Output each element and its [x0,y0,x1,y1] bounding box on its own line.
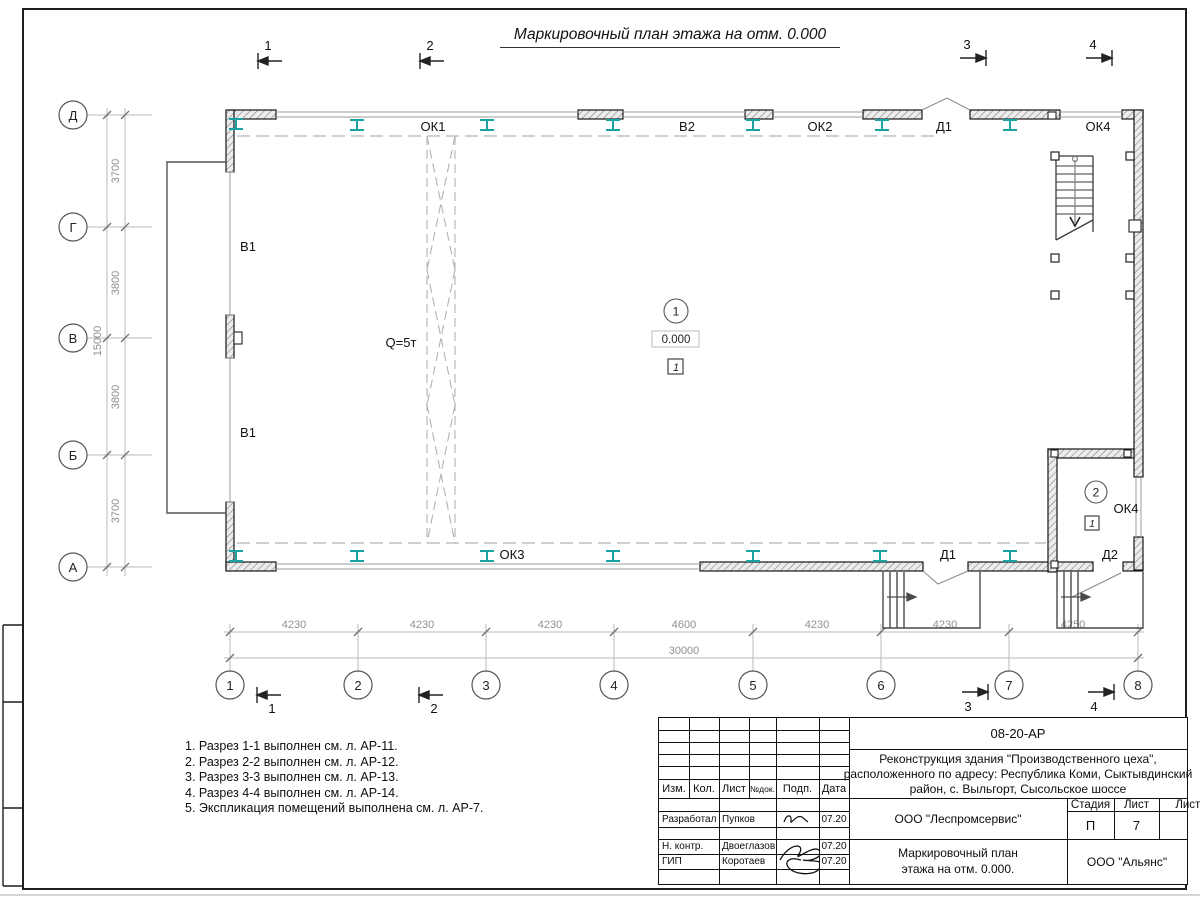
dim-v-3: 3800 [110,385,122,409]
dimension-lines [87,108,1144,671]
room-1-marker: 1 0.000 1 [652,299,699,374]
mark-v1-lower: В1 [240,425,256,440]
ibeam-icon [350,120,364,130]
ibeam-icon [1003,551,1017,561]
dim-h-4: 4600 [672,619,696,631]
dim-h-6: 4230 [933,619,957,631]
axis-row-a: А [69,560,78,575]
note-line: 2. Разрез 2-2 выполнен см. л. АР-12. [185,755,483,771]
room-2-number: 2 [1093,486,1100,500]
tb-sheet-label: Лист [1114,798,1159,811]
tb-client: ООО "Альянс" [1067,839,1187,884]
tb-date-ncontrol: 07.20 [819,839,849,854]
mark-crane-capacity: Q=5т [386,335,417,350]
staircase [1056,156,1093,240]
axis-col-3: 3 [482,678,489,693]
tb-stage-value: П [1067,811,1114,839]
room-2-floor-type: 1 [1089,518,1095,530]
note-line: 4. Разрез 4-4 выполнен см. л. АР-14. [185,786,483,802]
tb-role-gip: ГИП [662,854,719,869]
room-2-marker: 2 1 [1085,481,1107,530]
ibeam-icon [875,120,889,130]
tb-role-developer: Разработал [662,811,719,827]
section-2-top: 2 [426,38,433,53]
entrance-porches [883,572,1143,628]
dim-h-2: 4230 [410,619,434,631]
porch-direction-arrows [887,593,1090,601]
tb-project-line3: район, с. Выльгорт, Сысольское шоссе [849,781,1187,796]
axis-col-6: 6 [877,678,884,693]
signature-icon [776,808,819,881]
dim-h-5: 4230 [805,619,829,631]
dimension-ticks [103,111,1142,662]
section-4-bottom: 4 [1090,699,1097,714]
room-1-elevation: 0.000 [662,334,691,346]
tb-role-ncontrol: Н. контр. [662,839,719,854]
title-block: Изм. Кол. Лист №док. Подп. Дата Разработ… [658,717,1188,885]
ramp-outline [167,162,226,513]
tb-project-line1: Реконструкция здания "Производственного … [849,751,1187,766]
axis-row-b: Б [69,448,78,463]
mark-ok4-right: ОК4 [1114,501,1139,516]
mark-d1-top: Д1 [936,119,952,134]
tb-col-kol: Кол. [689,779,719,798]
dim-h-1: 4230 [282,619,306,631]
tb-org: ООО "Леспромсервис" [849,798,1067,839]
tb-doc-code: 08-20-АР [849,718,1187,749]
tb-date-developer: 07.20 [819,811,849,827]
section-1-bottom: 1 [268,701,275,716]
axis-col-8: 8 [1134,678,1141,693]
section-2-bottom: 2 [430,701,437,716]
ibeam-icon [746,120,760,130]
tb-col-data: Дата [819,779,849,798]
room-1-number: 1 [673,305,680,319]
section-3-bottom: 3 [964,699,971,714]
section-4-top: 4 [1089,37,1096,52]
ibeam-icon [606,120,620,130]
ibeam-icon [873,551,887,561]
axis-row-v: В [69,331,78,346]
dim-h-total: 30000 [669,645,700,657]
mark-v2: В2 [679,119,695,134]
mark-ok3: ОК3 [500,547,525,562]
crane-bracing-dashed [427,136,455,543]
tb-project-line2: расположенного по адресу: Республика Ком… [849,766,1187,781]
tb-name-ncontrol: Двоеглазов [722,839,776,854]
axis-row-g: Г [69,220,76,235]
note-line: 3. Разрез 3-3 выполнен см. л. АР-13. [185,770,483,786]
section-marker-labels: 1 2 3 4 1 2 3 4 [264,37,1097,716]
notes-block: 1. Разрез 1-1 выполнен см. л. АР-11. 2. … [185,739,483,817]
note-line: 1. Разрез 1-1 выполнен см. л. АР-11. [185,739,483,755]
axis-col-7: 7 [1005,678,1012,693]
ibeam-icon [480,120,494,130]
dim-v-2: 3800 [110,271,122,295]
tb-col-ndok: №док. [749,779,776,798]
axis-col-4: 4 [610,678,617,693]
note-line: 5. Экспликация помещений выполнена см. л… [185,801,483,817]
ibeam-icon [480,551,494,561]
section-1-top: 1 [264,38,271,53]
mark-d2: Д2 [1102,547,1118,562]
section-3-top: 3 [963,37,970,52]
tb-col-podp: Подп. [776,779,819,798]
tb-stage-label: Стадия [1067,798,1114,811]
ibeam-icon [606,551,620,561]
mark-ok4-top: ОК4 [1086,119,1111,134]
tb-sheets-label: Листов [1159,798,1200,811]
axis-markers [59,101,1152,699]
tb-col-izm: Изм. [659,779,689,798]
axis-col-2: 2 [354,678,361,693]
mark-ok1: ОК1 [421,119,446,134]
steel-column-icons [229,119,1017,561]
mark-d1-bottom: Д1 [940,547,956,562]
frame-binding-cells [3,625,22,886]
axis-col-5: 5 [749,678,756,693]
room-1-floor-type: 1 [673,362,679,374]
ibeam-icon [746,551,760,561]
mark-v1-upper: В1 [240,239,256,254]
tb-sheet-value: 7 [1114,811,1159,839]
mark-ok2: ОК2 [808,119,833,134]
tb-title-line2: этажа на отм. 0.000. [849,860,1067,878]
ibeam-icon [350,551,364,561]
dim-v-1: 3700 [110,159,122,183]
dim-v-total: 15000 [92,326,104,357]
tb-date-gip: 07.20 [819,854,849,869]
section-markers [257,50,1114,703]
ibeam-icon [1003,120,1017,130]
tb-name-developer: Пупков [722,811,776,827]
axis-row-d: Д [69,108,78,123]
dim-v-4: 3700 [110,499,122,523]
tb-col-list: Лист [719,779,749,798]
tb-name-gip: Коротаев [722,854,776,869]
dim-h-3: 4230 [538,619,562,631]
axis-col-1: 1 [226,678,233,693]
crane-rail-dashed-lines [237,136,1046,543]
drawing-sheet: { "sheet": { "title": "Маркировочный пла… [0,0,1200,900]
